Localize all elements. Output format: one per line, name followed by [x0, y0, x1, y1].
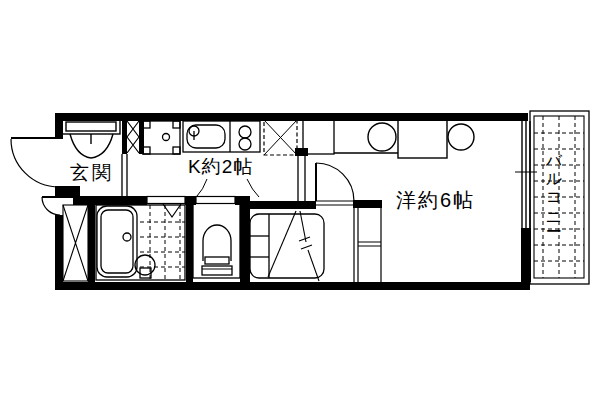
wall-bednook-top: [248, 201, 316, 209]
kitchen-room-partition: [298, 156, 305, 201]
entrance-closet: [62, 118, 120, 158]
toilet-door: [196, 197, 235, 204]
shower-floor-grid: [140, 205, 185, 280]
bathroom-door: [147, 197, 185, 204]
entrance-step-line: [122, 154, 127, 196]
dining-table-icon: [398, 118, 447, 158]
storage-door: [42, 197, 60, 215]
kitchen-label: K約2帖: [188, 154, 253, 180]
entrance-door: [11, 138, 62, 187]
chair-left-icon: [368, 123, 396, 151]
bed-icon: [250, 214, 324, 278]
dining-set: [368, 118, 474, 158]
wall-toilet-right: [240, 196, 250, 290]
floorplan-drawing: [0, 0, 600, 400]
wall-storage-bath: [88, 203, 95, 290]
wall-corridor-a: [73, 196, 147, 205]
wall-left-lower: [55, 215, 63, 290]
storage-x-space-icon: [63, 205, 88, 281]
pipe-space-icon: [127, 121, 139, 153]
floorplan-canvas: 玄関 K約2帖 洋約6帖 バルコニー: [0, 0, 600, 400]
main-room-label: 洋約6帖: [396, 187, 475, 214]
kitchen-label-leaders: [197, 179, 259, 197]
loft-ladder-shelf-icon: [354, 208, 381, 282]
entrance-label: 玄関: [70, 160, 114, 186]
kitchen-sink-icon: [187, 125, 225, 148]
wall-ps-left: [122, 121, 127, 154]
bath-door-fold-icon: [163, 204, 181, 217]
washing-machine-pan-icon: [143, 121, 180, 154]
refrigerator-space-icon: [264, 120, 297, 155]
shower-fixture-icon: [135, 255, 155, 278]
bathtub-icon: [97, 206, 137, 277]
wall-bath-toilet: [186, 203, 193, 290]
kitchen-counter: [183, 121, 260, 152]
bathroom: [96, 204, 185, 280]
partitions: [122, 153, 398, 201]
toilet-icon: [202, 225, 232, 275]
room-door: [316, 163, 354, 205]
chair-right-icon: [448, 124, 474, 150]
balcony-label: バルコニー: [545, 142, 564, 225]
toilet-room: [193, 202, 240, 278]
wall-bottom: [55, 282, 530, 290]
loft-above-marks: [268, 211, 319, 281]
gas-stove-icon: [239, 126, 251, 150]
wall-bednook-block: [353, 200, 382, 208]
